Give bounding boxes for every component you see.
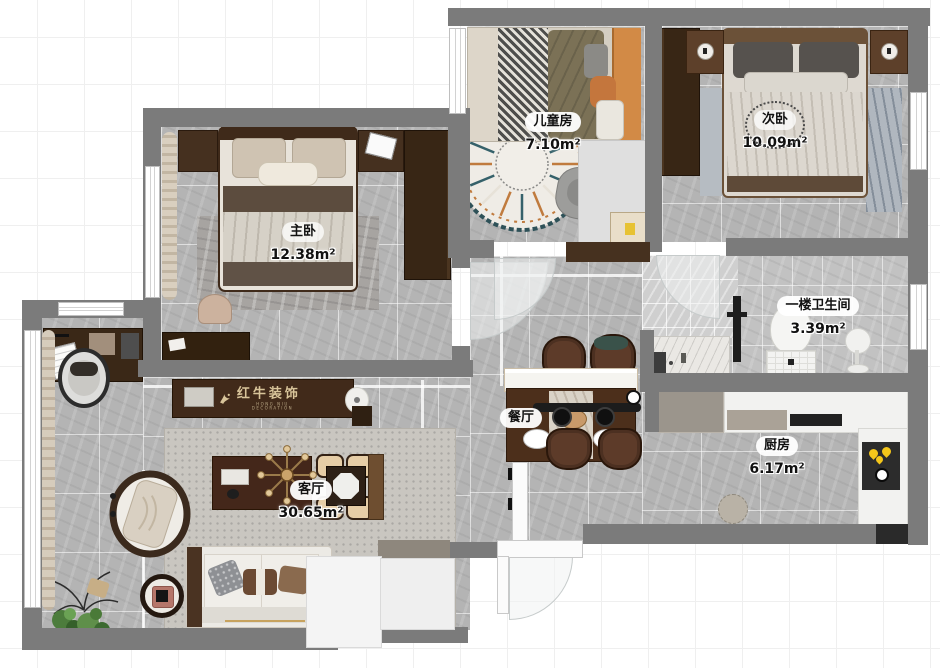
second-nightstand-left [686, 30, 724, 74]
stair-block-left [306, 556, 382, 648]
window-bath-right [910, 284, 927, 350]
label-kids-room: 儿童房 7.10m² [513, 112, 593, 153]
master-dressing-stool [198, 294, 232, 324]
cabinet-photo [184, 387, 214, 407]
kitchen-mat [718, 494, 748, 524]
flush-button [788, 359, 794, 365]
window-kids-left [449, 28, 466, 114]
pendant-lamp [595, 407, 615, 427]
second-bed-rug-right [866, 88, 902, 212]
toy-yellow [625, 223, 635, 235]
wood-plank [368, 454, 384, 520]
label-living-room: 客厅 30.65m² [270, 480, 352, 521]
wall-bath-stub [640, 330, 654, 375]
sofa-armrest [187, 547, 202, 627]
wall-master-bottom [138, 360, 473, 377]
room-area: 3.39m² [790, 321, 845, 337]
shower-glass-door [733, 296, 741, 362]
side-table-item [156, 590, 168, 602]
label-second-bedroom: 次卧 10.09m² [735, 110, 815, 151]
pendant-lamp [552, 407, 572, 427]
logo-text: 红牛装饰 [237, 387, 308, 400]
wall-entry-left [448, 542, 498, 558]
flame-icon [875, 455, 885, 465]
room-name: 餐厅 [500, 408, 542, 428]
master-wardrobe [404, 130, 451, 280]
dining-chair-bottom-right [598, 428, 642, 470]
master-pillow-center [258, 162, 318, 186]
kids-pillow-white [596, 100, 624, 140]
master-nightstand-left [178, 130, 218, 172]
wall-master-right-a [452, 108, 470, 268]
master-curtain [162, 132, 177, 300]
master-duvet-end [223, 262, 353, 286]
accent-chair [108, 470, 192, 558]
room-name: 主卧 [282, 222, 324, 242]
gas-cooktop [862, 442, 900, 490]
room-name: 一楼卫生间 [777, 296, 858, 316]
stair-block-right [380, 558, 455, 630]
tray [221, 469, 249, 485]
second-foot-band [727, 176, 863, 192]
desk-monitor [121, 333, 139, 359]
room-name: 儿童房 [525, 112, 580, 132]
label-master-bedroom: 主卧 12.38m² [263, 222, 343, 263]
wall-right [908, 8, 928, 545]
label-kitchen: 厨房 6.17m² [737, 436, 817, 477]
wall-living-bottom [22, 628, 338, 650]
kids-door-threshold [566, 242, 650, 262]
kitchen-sink-section [727, 410, 787, 430]
door-arc-entrance [509, 556, 573, 620]
round-side-table [140, 574, 184, 618]
wall-kitchen-bottom [583, 524, 910, 544]
chair-tag [70, 362, 98, 376]
room-name: 厨房 [756, 436, 798, 456]
wall-room-divider [645, 26, 662, 252]
bowl [227, 489, 239, 499]
window-living-left [24, 330, 41, 608]
bull-icon [218, 391, 232, 406]
lamp-dot [703, 48, 707, 54]
wall-top [448, 8, 930, 26]
desk-chair [58, 348, 110, 408]
window-living-top [58, 302, 124, 316]
wall-kitchen-stub [645, 392, 659, 432]
window-master-left [145, 166, 160, 298]
cooktop-knob [875, 468, 889, 482]
logo-tagline: HONG NIU DECORATION [237, 402, 308, 410]
window-second-right [910, 92, 927, 170]
second-pillow-band [744, 72, 848, 94]
lamp-dot [354, 397, 360, 403]
dotted-ring [745, 101, 805, 149]
kids-sheet [468, 28, 498, 141]
sliding-door-panel [512, 462, 528, 542]
teal-chair-back [594, 336, 628, 350]
side-cabinet [352, 406, 372, 426]
sofa-gold-line [225, 620, 305, 622]
shower-door-handle [727, 312, 747, 317]
dresser-card [168, 338, 186, 352]
room-area: 12.38m² [270, 247, 335, 263]
master-nightstand-right [358, 130, 404, 172]
kids-pillow-gray [584, 44, 608, 78]
room-area: 6.17m² [749, 461, 804, 477]
wall-bath-kitchen-divider [640, 373, 908, 392]
room-area: 30.65m² [278, 505, 343, 521]
dining-chair-bottom-left [546, 428, 592, 470]
label-bathroom: 一楼卫生间 3.39m² [758, 296, 878, 337]
kitchen-hood-strip [790, 414, 842, 426]
wall-upper-bottom-b [726, 238, 908, 256]
flame-icon [880, 445, 893, 458]
table-ring-marker [626, 390, 641, 405]
tv-cabinet: 红牛装饰 HONG NIU DECORATION [172, 379, 354, 418]
master-bed [218, 126, 358, 292]
master-duvet-fold [223, 186, 353, 212]
notebook [365, 132, 397, 160]
label-dining-room: 餐厅 [496, 408, 546, 428]
living-curtain [42, 330, 55, 610]
pillow-band [256, 569, 265, 595]
kitchen-dark-box [876, 524, 908, 544]
floor-plan: 红牛装饰 HONG NIU DECORATION [0, 0, 940, 668]
entrance-door-leaf [497, 556, 509, 614]
room-area: 7.10m² [525, 137, 580, 153]
wall-master-top [143, 108, 470, 127]
second-nightstand-right [870, 30, 908, 74]
sofa-pillow-brown [243, 569, 277, 595]
room-name: 客厅 [290, 480, 332, 500]
pendant-light-bar [533, 403, 641, 412]
brand-logo: 红牛装饰 HONG NIU DECORATION [218, 387, 308, 410]
toilet-tank [766, 350, 816, 374]
entrance-threshold [497, 540, 583, 558]
lamp-dot [887, 48, 891, 54]
faucet [681, 353, 686, 363]
